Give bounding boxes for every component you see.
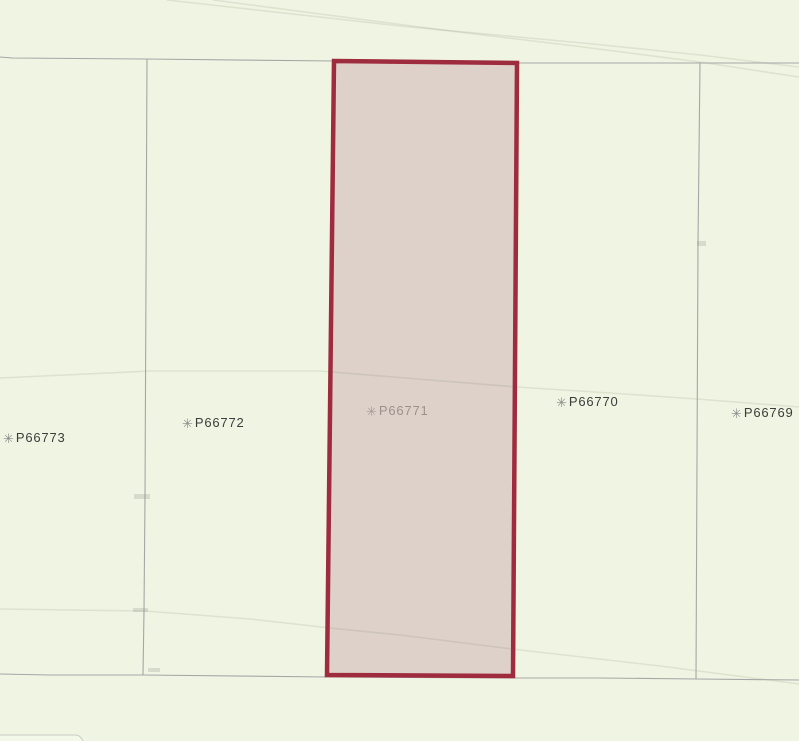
map-viewport[interactable]: ✳P66773✳P66772✳P66771✳P66770✳P66769 [0,0,799,741]
parcel-label-p66772[interactable]: ✳P66772 [182,415,245,431]
asterisk-marker-icon: ✳ [3,432,14,445]
map-artifact [133,608,148,612]
map-artifact [148,668,160,672]
asterisk-marker-icon: ✳ [731,407,742,420]
parcel-label-p66773[interactable]: ✳P66773 [3,430,66,446]
parcel-label-text: P66772 [195,415,245,431]
map-artifact [697,241,706,246]
edge-parcel-shape [0,735,83,741]
asterisk-marker-icon: ✳ [556,396,567,409]
parcel-label-text: P66773 [16,430,66,446]
parcel-label-text: P66770 [569,394,619,410]
parcel-label-text: P66771 [379,403,429,419]
asterisk-marker-icon: ✳ [182,417,193,430]
parcel-label-p66771[interactable]: ✳P66771 [366,403,429,419]
parcel-label-p66770[interactable]: ✳P66770 [556,394,619,410]
parcel-label-text: P66769 [744,405,794,421]
parcel-label-p66769[interactable]: ✳P66769 [731,405,794,421]
selected-parcel[interactable] [327,61,517,676]
asterisk-marker-icon: ✳ [366,405,377,418]
map-artifact [134,494,150,499]
map-canvas [0,0,799,741]
